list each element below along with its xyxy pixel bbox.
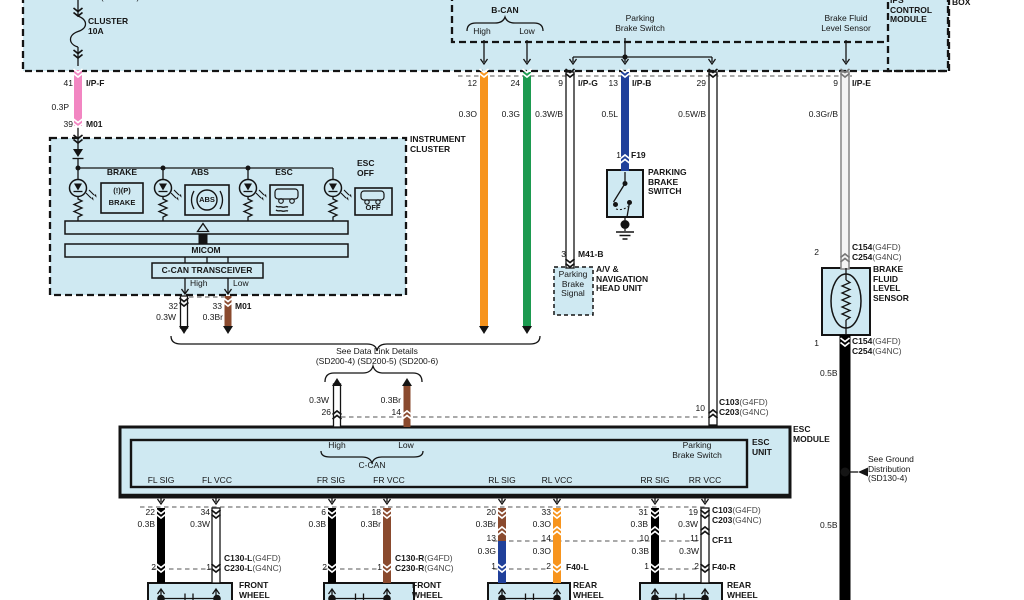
- wire-0-3O: [480, 72, 488, 328]
- fl-pin-22: 22: [146, 508, 155, 518]
- rr-pin-10: 10: [640, 534, 649, 544]
- wire-0-3GrB: [841, 72, 849, 269]
- rl-gauge-mid-sig: 0.3G: [478, 547, 496, 557]
- conn-m01-top: M01: [86, 120, 103, 130]
- gauge-05l: 0.5L: [601, 110, 618, 120]
- fl-pin-1: 1: [206, 563, 211, 573]
- conn-c254-bot: C254(G4NC): [852, 347, 902, 357]
- wire-0-5WB: [709, 72, 717, 425]
- rr-conn-cf11: CF11: [712, 536, 732, 546]
- esc-pbs-label: Parking Brake Switch: [672, 441, 722, 460]
- conn-m01-cluster: M01: [235, 302, 252, 312]
- pin-14-esc: 14: [392, 408, 401, 418]
- pin-9-ipe: 9: [833, 79, 838, 89]
- fl-pin-2: 2: [151, 563, 156, 573]
- pin-2-bfls: 2: [814, 248, 819, 258]
- esc-port-rl-vcc: RL VCC: [542, 476, 573, 486]
- ground-dot: [621, 220, 630, 229]
- fl-gauge-vcc: 0.3W: [190, 520, 210, 530]
- pin-32: 32: [169, 302, 178, 312]
- esc-module-label: ESC MODULE: [793, 425, 830, 444]
- fl-gauge-sig: 0.3B: [138, 520, 156, 530]
- bcan-low-label: Low: [519, 27, 535, 37]
- fuse-label: CLUSTER 10A: [88, 17, 128, 36]
- bcan-label: B-CAN: [491, 6, 518, 16]
- esc-ccan-label: C-CAN: [359, 461, 386, 471]
- datalink-refs-label: (SD200-4) (SD200-5) (SD200-6): [316, 357, 438, 367]
- pin-39: 39: [64, 120, 73, 130]
- fl-conn-2: C230-L(G4NC): [224, 564, 282, 574]
- esc-indicator-label: ESC: [275, 168, 292, 178]
- gauge-03g: 0.3G: [502, 110, 520, 120]
- rr-gauge-mid-sig: 0.3B: [632, 547, 650, 557]
- gauge-03br-cluster: 0.3Br: [203, 313, 223, 323]
- gauge-03p: 0.3P: [52, 103, 70, 113]
- fr-pin-6: 6: [321, 508, 326, 518]
- gauge-03br-esc: 0.3Br: [381, 396, 401, 406]
- rl-conn-f40l: F40-L: [566, 563, 589, 573]
- conn-f19: F19: [631, 151, 646, 161]
- brake-icon-text: BRAKE: [109, 199, 136, 208]
- ground-distribution-ref: [841, 468, 869, 477]
- conn-ipe: I/P-E: [852, 79, 871, 89]
- esc-port-fr-vcc: FR VCC: [373, 476, 405, 486]
- esc-off-icon-text: OFF: [366, 204, 381, 213]
- esc-port-rr-vcc: RR VCC: [689, 476, 722, 486]
- pin-24: 24: [511, 79, 520, 89]
- brake-icon-symbols: (!)(P): [113, 187, 131, 196]
- wire-0-3P: [74, 70, 82, 126]
- fr-conn-2: C230-R(G4NC): [395, 564, 454, 574]
- wiring-diagram: (SD110-6) CLUSTER 10A B-CAN High Low Par…: [0, 0, 1024, 600]
- pin-26: 26: [322, 408, 331, 418]
- esc-port-rr-sig: RR SIG: [640, 476, 669, 486]
- instrument-cluster-label: INSTRUMENT CLUSTER: [410, 135, 466, 154]
- esc-port-fr-sig: FR SIG: [317, 476, 345, 486]
- rl-pin-1: 1: [491, 562, 496, 572]
- esc-unit-label: ESC UNIT: [752, 438, 772, 457]
- pin-3-m41b: 3: [561, 250, 566, 260]
- rl-gauge-mid-vcc: 0.3O: [533, 547, 551, 557]
- conn-ipf: I/P-F: [86, 79, 104, 89]
- pin-13: 13: [609, 79, 618, 89]
- rl-pin-2: 2: [546, 562, 551, 572]
- ground-icon: [616, 232, 634, 239]
- fr-pin-2: 2: [322, 563, 327, 573]
- conn-m41b: M41-B: [578, 250, 604, 260]
- wire-esc-high-0-3W: [334, 384, 341, 427]
- fr-pin-18: 18: [372, 508, 381, 518]
- rr-conn-c203: C203(G4NC): [712, 516, 762, 526]
- cluster-high-label: High: [190, 279, 207, 289]
- rl-pin-13: 13: [487, 534, 496, 544]
- rl-gauge-sig: 0.3Br: [476, 520, 496, 530]
- gauge-03w-cluster: 0.3W: [156, 313, 176, 323]
- pin-41: 41: [64, 79, 73, 89]
- gauge-05wb: 0.5W/B: [678, 110, 706, 120]
- rl-pin-14: 14: [542, 534, 551, 544]
- micom-label: MICOM: [191, 246, 220, 256]
- wire-rl-sig-lower: [498, 541, 506, 583]
- pin-10-esc: 10: [696, 404, 705, 414]
- conn-c203-esc: C203(G4NC): [719, 408, 769, 418]
- parking-brake-switch-label: PARKING BRAKE SWITCH: [648, 168, 687, 197]
- avn-head-unit-label: A/V & NAVIGATION HEAD UNIT: [596, 265, 648, 294]
- gauge-05b-upper: 0.5B: [820, 369, 838, 379]
- pin-33: 33: [213, 302, 222, 312]
- esc-module-box: [120, 427, 790, 497]
- conn-ipg: I/P-G: [578, 79, 598, 89]
- wire-esc-low-0-3Br: [404, 384, 411, 427]
- parking-brake-signal-label: Parking Brake Signal: [559, 270, 588, 299]
- esc-port-fl-vcc: FL VCC: [202, 476, 232, 486]
- abs-icon-text: ABS: [199, 196, 215, 205]
- power-source-ref: (SD110-6): [101, 0, 140, 3]
- gauge-03wb: 0.3W/B: [535, 110, 563, 120]
- pin-1-f19: 1: [616, 151, 621, 161]
- rl-pin-20: 20: [487, 508, 496, 518]
- fr-wheel-label: FRONT WHEEL: [412, 581, 443, 600]
- brake-fluid-top-label: Brake Fluid Level Sensor: [821, 14, 871, 33]
- cluster-low-label: Low: [233, 279, 249, 289]
- rr-pin-31: 31: [639, 508, 648, 518]
- pin-1-bfls: 1: [814, 339, 819, 349]
- brake-fluid-sensor-label: BRAKE FLUID LEVEL SENSOR: [873, 265, 909, 303]
- conn-ipb: I/P-B: [632, 79, 651, 89]
- abs-indicator-label: ABS: [191, 168, 209, 178]
- parking-brake-switch-top-label: Parking Brake Switch: [615, 14, 665, 33]
- rr-pin-19: 19: [689, 508, 698, 518]
- ground-distribution-label: See Ground Distribution (SD130-4): [868, 455, 914, 484]
- pin-29: 29: [697, 79, 706, 89]
- esc-port-rl-sig: RL SIG: [488, 476, 516, 486]
- ips-module-label: IPS CONTROL MODULE: [890, 0, 932, 25]
- brake-indicator-label: BRAKE: [107, 168, 137, 178]
- rr-conn-f40r: F40-R: [712, 563, 736, 573]
- bcan-high-label: High: [473, 27, 490, 37]
- wire-0-3G: [523, 72, 531, 328]
- rr-pin-1: 1: [644, 562, 649, 572]
- fr-pin-1: 1: [377, 563, 382, 573]
- rl-pin-33: 33: [542, 508, 551, 518]
- pin-9-ipg: 9: [558, 79, 563, 89]
- rr-gauge-mid-vcc: 0.3W: [679, 547, 699, 557]
- rr-gauge-sig: 0.3B: [631, 520, 649, 530]
- rl-wheel-label: REAR WHEEL: [573, 581, 604, 600]
- rr-pin-2: 2: [694, 562, 699, 572]
- fl-pin-34: 34: [201, 508, 210, 518]
- fl-wheel-label: FRONT WHEEL: [239, 581, 270, 600]
- gauge-03o: 0.3O: [459, 110, 477, 120]
- wire-0-3WB: [566, 72, 574, 268]
- esc-port-fl-sig: FL SIG: [148, 476, 175, 486]
- gauge-03w-esc: 0.3W: [309, 396, 329, 406]
- rl-gauge-vcc: 0.3O: [533, 520, 551, 530]
- rr-wheel-label: REAR WHEEL: [727, 581, 758, 600]
- fr-gauge-sig: 0.3B: [309, 520, 327, 530]
- fr-gauge-vcc: 0.3Br: [361, 520, 381, 530]
- esc-low-label: Low: [398, 441, 414, 451]
- rr-pin-11: 11: [690, 534, 699, 544]
- esc-off-indicator-label: ESC OFF: [357, 159, 374, 178]
- esc-high-label: High: [328, 441, 345, 451]
- pin-12: 12: [468, 79, 477, 89]
- rr-gauge-vcc: 0.3W: [678, 520, 698, 530]
- ccan-transceiver-label: C-CAN TRANSCEIVER: [162, 266, 253, 276]
- conn-c254-top: C254(G4NC): [852, 253, 902, 263]
- gauge-03grb: 0.3Gr/B: [809, 110, 838, 120]
- junction-box-label: BOX: [952, 0, 970, 8]
- gauge-05b-lower: 0.5B: [820, 521, 838, 531]
